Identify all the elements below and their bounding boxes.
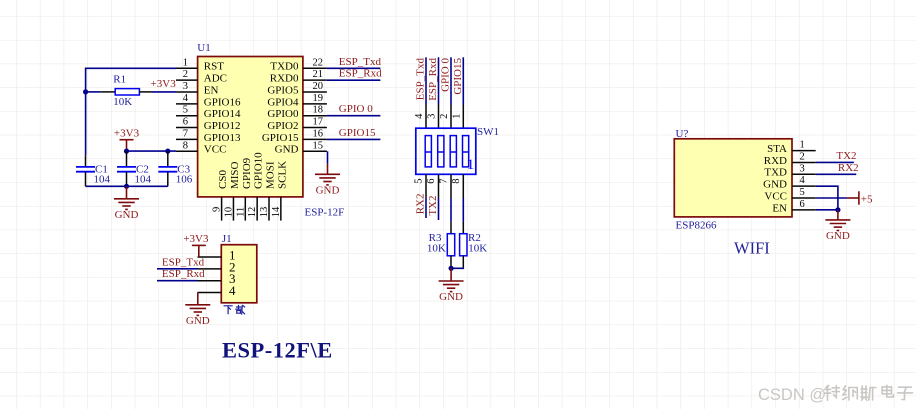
svg-text:18: 18: [313, 105, 324, 116]
svg-text:GPIO 0: GPIO 0: [440, 58, 452, 92]
svg-text:12: 12: [247, 207, 258, 218]
svg-text:2: 2: [439, 114, 450, 119]
svg-text:19: 19: [313, 93, 324, 104]
svg-text:8: 8: [183, 140, 188, 151]
svg-text:ESP_Txd: ESP_Txd: [339, 56, 382, 68]
svg-text:11: 11: [235, 207, 246, 217]
svg-text:GPIO12: GPIO12: [204, 120, 241, 132]
svg-text:GND: GND: [826, 230, 850, 242]
svg-text:15: 15: [313, 140, 324, 151]
svg-text:8: 8: [451, 179, 462, 184]
svg-text:104: 104: [135, 174, 152, 186]
svg-text:GND: GND: [763, 179, 787, 191]
svg-text:GPIO4: GPIO4: [267, 96, 299, 108]
svg-text:GPIO5: GPIO5: [267, 84, 299, 96]
svg-text:MISO: MISO: [229, 161, 241, 189]
svg-text:GPIO15: GPIO15: [452, 58, 464, 95]
svg-text:U?: U?: [676, 128, 689, 140]
svg-text:GPIO16: GPIO16: [204, 96, 241, 108]
svg-text:TXD: TXD: [764, 167, 787, 179]
svg-text:VCC: VCC: [204, 144, 227, 156]
svg-text:GPIO15: GPIO15: [262, 132, 299, 144]
svg-text:17: 17: [313, 117, 324, 128]
svg-text:MOSI: MOSI: [265, 161, 277, 189]
svg-text:7: 7: [439, 179, 450, 184]
svg-text:4: 4: [800, 175, 806, 186]
svg-text:GND: GND: [186, 315, 210, 327]
svg-text:16: 16: [313, 128, 324, 139]
svg-text:1: 1: [467, 157, 475, 173]
svg-text:+3V3: +3V3: [114, 128, 140, 140]
svg-text:GPIO0: GPIO0: [267, 108, 299, 120]
svg-text:GND: GND: [316, 185, 340, 197]
svg-text:1: 1: [800, 140, 805, 151]
svg-text:ESP-12F: ESP-12F: [305, 207, 345, 219]
svg-text:4: 4: [229, 283, 236, 298]
svg-text:2: 2: [800, 151, 805, 162]
svg-text:6: 6: [183, 117, 188, 128]
svg-text:GND: GND: [115, 209, 139, 221]
svg-text:CSDN @: CSDN @: [758, 386, 826, 404]
svg-text:4: 4: [183, 93, 189, 104]
svg-text:+3V3: +3V3: [151, 78, 177, 90]
svg-text:RX2: RX2: [838, 162, 859, 174]
svg-text:SCLK: SCLK: [276, 161, 288, 189]
svg-text:5: 5: [800, 187, 805, 198]
svg-text:GPIO10: GPIO10: [253, 152, 265, 189]
svg-text:RX2: RX2: [415, 194, 427, 215]
svg-text:RXD: RXD: [764, 155, 787, 167]
svg-text:ESP_Txd: ESP_Txd: [415, 58, 427, 101]
svg-text:6: 6: [426, 179, 437, 184]
svg-text:ESP_Rxd: ESP_Rxd: [339, 68, 382, 80]
svg-text:5: 5: [414, 179, 425, 184]
svg-text:4: 4: [414, 113, 425, 119]
svg-text:3: 3: [183, 81, 188, 92]
svg-text:3: 3: [800, 163, 805, 174]
svg-text:STA: STA: [767, 143, 787, 155]
svg-text:J1: J1: [222, 233, 232, 245]
svg-text:10K: 10K: [468, 243, 487, 255]
svg-text:RST: RST: [204, 61, 224, 73]
svg-text:21: 21: [313, 69, 324, 80]
svg-text:GPIO9: GPIO9: [241, 157, 253, 189]
svg-text:TX2: TX2: [427, 196, 439, 216]
svg-text:6: 6: [800, 199, 805, 210]
svg-text:ESP-12F\E: ESP-12F\E: [222, 338, 333, 363]
svg-text:14: 14: [271, 206, 282, 217]
svg-text:EN: EN: [204, 84, 219, 96]
svg-text:7: 7: [183, 128, 188, 139]
svg-text:SW1: SW1: [477, 126, 499, 138]
svg-text:106: 106: [176, 174, 193, 186]
svg-text:10K: 10K: [113, 96, 132, 108]
svg-text:R1: R1: [113, 74, 126, 86]
svg-text:VCC: VCC: [764, 190, 787, 202]
svg-text:3: 3: [427, 114, 438, 119]
svg-text:13: 13: [259, 207, 270, 218]
svg-text:1: 1: [183, 57, 188, 68]
svg-text:GPIO2: GPIO2: [267, 120, 298, 132]
svg-text:20: 20: [313, 81, 324, 92]
svg-text:ESP_Rxd: ESP_Rxd: [162, 268, 205, 280]
svg-text:GND: GND: [439, 291, 463, 303]
svg-text:ESP_Txd: ESP_Txd: [162, 256, 205, 268]
svg-text:GPIO14: GPIO14: [204, 108, 241, 120]
svg-text:TXD0: TXD0: [270, 61, 299, 73]
svg-text:22: 22: [313, 57, 324, 68]
svg-text:EN: EN: [772, 202, 787, 214]
svg-text:GND: GND: [275, 144, 299, 156]
svg-text:GPIO 0: GPIO 0: [339, 103, 373, 115]
svg-text:5: 5: [183, 105, 188, 116]
svg-text:GPIO15: GPIO15: [339, 127, 376, 139]
svg-text:U1: U1: [197, 42, 210, 54]
svg-text:WIFI: WIFI: [734, 238, 770, 257]
svg-text:1: 1: [451, 114, 462, 119]
svg-text:+5: +5: [861, 193, 873, 205]
svg-text:RXD0: RXD0: [270, 73, 299, 85]
svg-text:10K: 10K: [427, 243, 446, 255]
svg-text:9: 9: [212, 207, 223, 212]
svg-text:CS0: CS0: [217, 170, 229, 189]
svg-text:TX2: TX2: [836, 150, 856, 162]
svg-text:104: 104: [94, 174, 111, 186]
svg-text:GPIO13: GPIO13: [204, 132, 241, 144]
svg-text:ADC: ADC: [204, 73, 227, 85]
svg-text:10: 10: [223, 207, 234, 218]
svg-text:2: 2: [183, 69, 188, 80]
svg-text:ESP8266: ESP8266: [676, 220, 717, 232]
svg-text:ESP_Rxd: ESP_Rxd: [427, 58, 439, 101]
svg-text:+3V3: +3V3: [183, 233, 209, 245]
